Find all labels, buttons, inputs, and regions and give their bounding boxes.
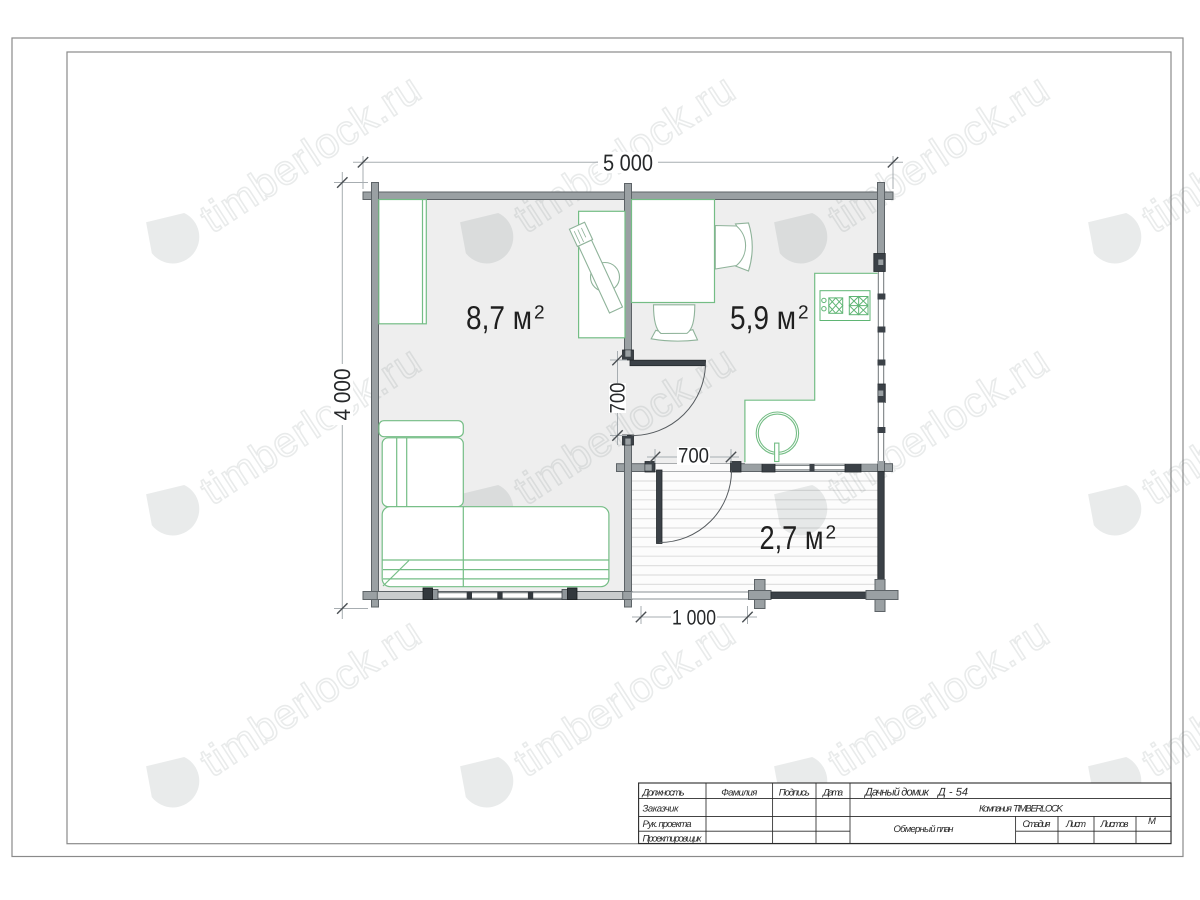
svg-text:2: 2 [534, 303, 545, 324]
svg-text:Компания: Компания [979, 804, 1012, 815]
svg-text:Стадия: Стадия [1023, 819, 1051, 830]
svg-text:Должность: Должность [642, 788, 685, 799]
svg-text:5,9 м: 5,9 м [730, 299, 796, 336]
svg-text:TIMBERLOCK: TIMBERLOCK [1013, 804, 1064, 815]
svg-text:Проектировщик: Проектировщик [643, 834, 703, 845]
svg-text:5 000: 5 000 [603, 150, 653, 176]
svg-text:М: М [1148, 816, 1156, 827]
svg-text:Заказчик: Заказчик [643, 804, 680, 815]
svg-text:Дата: Дата [822, 788, 843, 799]
svg-text:2: 2 [798, 303, 809, 324]
svg-text:2: 2 [826, 523, 837, 544]
svg-text:план: план [937, 824, 955, 835]
svg-text:Рук. проекта: Рук. проекта [643, 819, 692, 830]
svg-text:Листов: Листов [1100, 819, 1129, 830]
svg-text:Обмерный: Обмерный [894, 824, 937, 835]
svg-text:2,7 м: 2,7 м [760, 519, 824, 556]
svg-text:700: 700 [607, 383, 630, 414]
svg-text:Лист: Лист [1065, 819, 1086, 830]
svg-text:4 000: 4 000 [329, 369, 355, 421]
svg-text:8,7 м: 8,7 м [466, 299, 532, 336]
svg-text:Подпись: Подпись [779, 788, 810, 799]
svg-text:1 000: 1 000 [672, 607, 716, 630]
svg-text:Дачный домик: Дачный домик [863, 787, 930, 799]
svg-text:Фамилия: Фамилия [721, 788, 757, 799]
svg-text:Д - 54: Д - 54 [936, 787, 968, 799]
svg-text:700: 700 [678, 445, 709, 468]
